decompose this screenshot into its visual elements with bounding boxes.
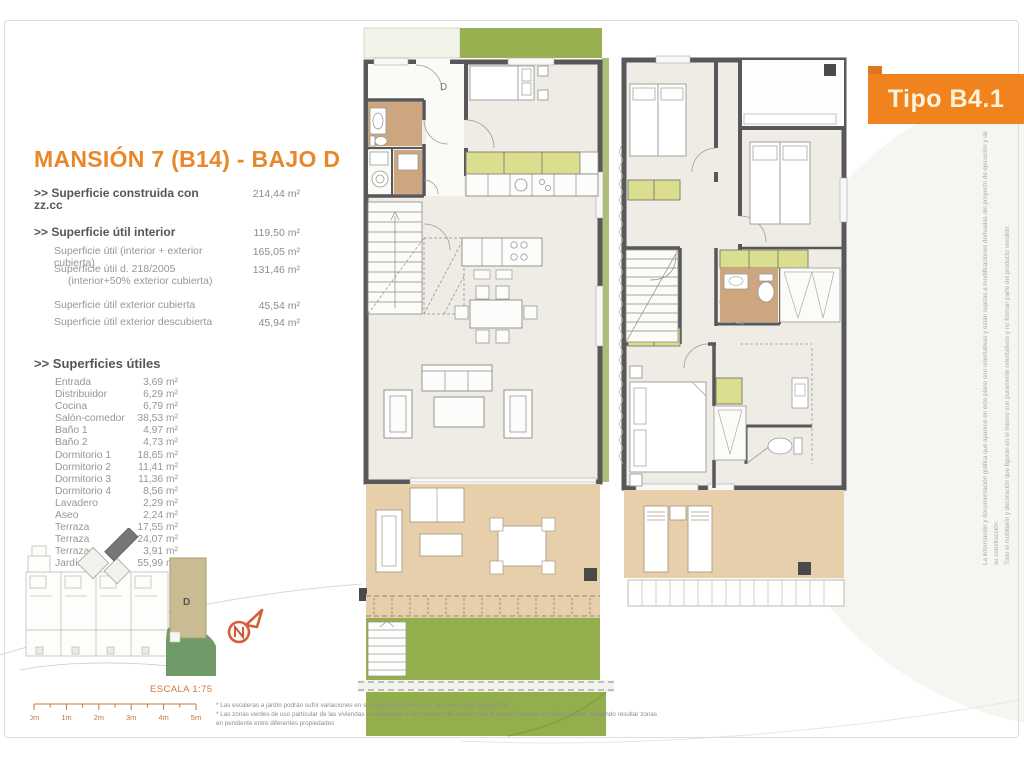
room-area: 18,65 m²: [137, 450, 178, 462]
room-area: 8,56 m²: [143, 486, 178, 498]
closet: [780, 268, 840, 322]
svg-text:5m: 5m: [191, 713, 201, 722]
room-name: Lavadero: [55, 498, 98, 510]
type-badge: Tipo B4.1: [868, 74, 1024, 124]
badge-notch: [868, 66, 882, 74]
room-row: Dormitorio 1 18,65 m²: [55, 450, 178, 462]
site-plan-thumbnail: D: [20, 528, 220, 678]
summary-value: 165,05 m²: [253, 246, 300, 258]
north-compass-icon: [224, 604, 268, 648]
room-area: 38,53 m²: [137, 413, 178, 425]
siteplan-unit-step: [170, 632, 180, 642]
room-name: Cocina: [55, 401, 87, 413]
summary-label: Superficie útil exterior cubierta: [54, 300, 244, 312]
scale-label: ESCALA 1:75: [150, 684, 213, 695]
room-name: Baño 2: [55, 437, 88, 449]
railing: [628, 580, 844, 606]
room-name: Dormitorio 2: [55, 462, 111, 474]
summary-label: >> Superficie construida con zz.cc: [34, 188, 224, 211]
garden-steps: [368, 621, 406, 676]
room-area: 6,29 m²: [143, 389, 178, 401]
ground-unit-label: D: [440, 82, 447, 93]
room-area: 6,79 m²: [143, 401, 178, 413]
rooms-header: >> Superficies útiles: [34, 356, 160, 371]
twin-beds-left: [630, 84, 686, 156]
summary-value: 214,44 m²: [253, 188, 300, 200]
summary-label: Superficie útil exterior descubierta: [54, 317, 244, 329]
summary-value: 45,54 m²: [259, 300, 300, 312]
room-area: 4,73 m²: [143, 437, 178, 449]
room-row: Entrada 3,69 m²: [55, 377, 178, 389]
room-row: Aseo 2,24 m²: [55, 510, 178, 522]
room-row: Cocina 6,79 m²: [55, 401, 178, 413]
vertical-disclaimer: La información y documentación gráfica q…: [980, 130, 1013, 565]
room-row: Dormitorio 4 8,56 m²: [55, 486, 178, 498]
scale-bar: 0m 1m 2m 3m 4m 5m: [30, 698, 208, 724]
footnote-line: * Las escaleras a jardín podrán sufrir v…: [216, 701, 661, 710]
room-row: Salón-comedor 38,53 m²: [55, 413, 178, 425]
room-row: Distribuidor 6,29 m²: [55, 389, 178, 401]
summary-label: >> Superficie útil interior: [34, 227, 224, 239]
room-area: 4,97 m²: [143, 425, 178, 437]
room-row: Dormitorio 2 11,41 m²: [55, 462, 178, 474]
garden-gap: [358, 680, 614, 692]
summary-value: 131,46 m²: [253, 264, 300, 276]
open-terrace: [740, 60, 844, 128]
svg-text:3m: 3m: [126, 713, 136, 722]
footnotes: * Las escaleras a jardín podrán sufrir v…: [216, 701, 661, 728]
master-bed: [630, 366, 706, 486]
summary-label: Superficie útil d. 218/2005(interior+50%…: [54, 264, 244, 287]
wardrobe-end-cell: [580, 152, 598, 174]
pergola-band: [366, 594, 600, 618]
wc: [768, 438, 802, 454]
room-row: Dormitorio 3 11,36 m²: [55, 474, 178, 486]
summary-value: 119,50 m²: [254, 227, 301, 239]
room-area: 11,41 m²: [138, 462, 178, 474]
terrace-post: [359, 588, 367, 601]
room-row: Lavadero 2,29 m²: [55, 498, 178, 510]
plan-sheet: Tipo B4.1 MANSIÓN 7 (B14) - BAJO D >> Su…: [0, 0, 1024, 768]
summary-value: 45,94 m²: [259, 317, 300, 329]
upper-floor-plan: [616, 48, 852, 668]
dressing-closet: [714, 406, 746, 460]
room-area: 2,24 m²: [143, 510, 178, 522]
room-name: Dormitorio 3: [55, 474, 111, 486]
page-title: MANSIÓN 7 (B14) - BAJO D: [34, 146, 340, 173]
room-area: 3,69 m²: [143, 377, 178, 389]
garden-strip-pale: [364, 28, 460, 58]
twin-beds-right: [750, 142, 810, 224]
room-name: Dormitorio 4: [55, 486, 111, 498]
room-name: Distribuidor: [55, 389, 107, 401]
stairs: [626, 250, 678, 342]
siteplan-unit-label: D: [183, 597, 190, 608]
terrace-post: [798, 562, 811, 575]
bathroom: [720, 268, 778, 322]
room-row: Baño 1 4,97 m²: [55, 425, 178, 437]
disclaimer-line: La información y documentación gráfica q…: [980, 130, 1002, 565]
scale-tick-labels: 0m 1m 2m 3m 4m 5m: [30, 713, 201, 722]
room-name: Aseo: [55, 510, 78, 522]
svg-text:2m: 2m: [94, 713, 104, 722]
footnote-line: * Las zonas verdes de uso particular de …: [216, 710, 661, 728]
garden-strip-right: [602, 58, 609, 482]
room-row: Baño 2 4,73 m²: [55, 437, 178, 449]
room-name: Baño 1: [55, 425, 88, 437]
room-name: Entrada: [55, 377, 91, 389]
ground-floor-plan: D: [358, 24, 614, 738]
room-name: Dormitorio 1: [55, 450, 111, 462]
disclaimer-line: Todo el mobiliario y decoración que figu…: [1002, 130, 1013, 565]
room-name: Salón-comedor: [55, 413, 125, 425]
svg-text:1m: 1m: [61, 713, 71, 722]
svg-text:4m: 4m: [158, 713, 168, 722]
terrace-post: [584, 568, 597, 581]
wardrobe: [466, 152, 580, 174]
svg-text:0m: 0m: [30, 713, 39, 722]
kitchen-counter: [466, 174, 598, 196]
room-area: 11,36 m²: [138, 474, 178, 486]
desk: [792, 378, 808, 408]
room-area: 2,29 m²: [143, 498, 178, 510]
garden-strip-top: [460, 28, 602, 58]
